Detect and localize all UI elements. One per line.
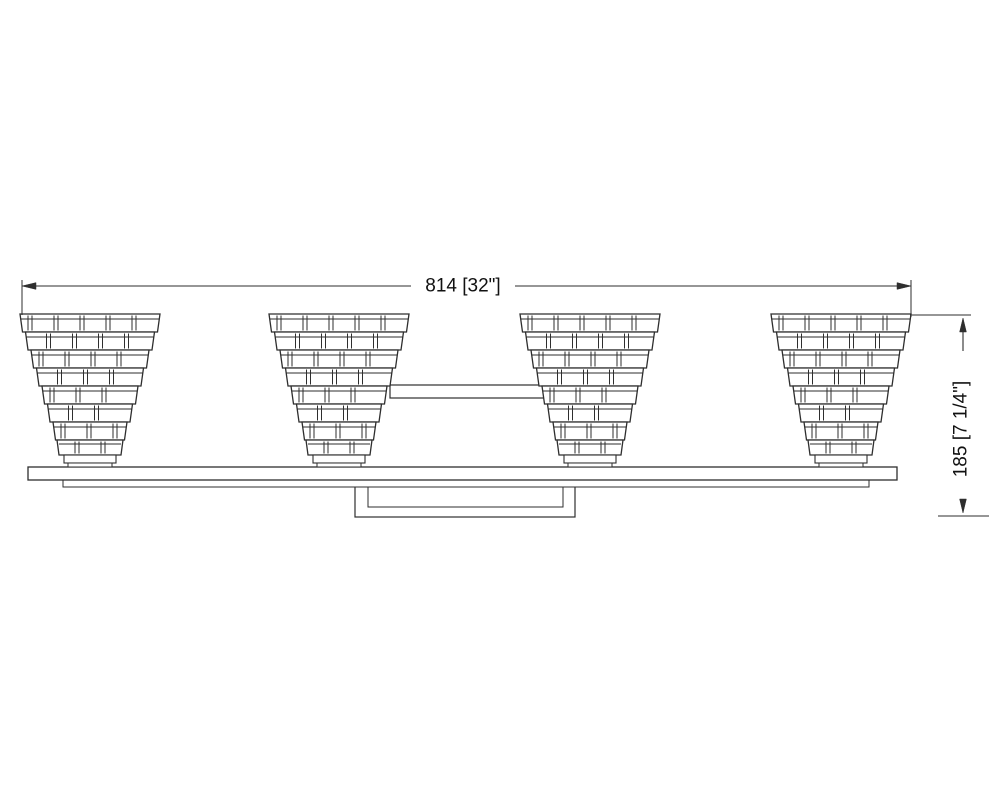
drawing-canvas: 814 [32"] 185 [7 1/4"] [0, 0, 1000, 800]
crossbar-arm [390, 385, 545, 398]
fixture-line-drawing [0, 0, 1000, 800]
mounting-bar [28, 467, 897, 487]
mounting-backplate [355, 486, 575, 517]
height-dimension-label: 185 [7 1/4"] [952, 376, 971, 483]
shade-4 [771, 314, 911, 467]
shade-2 [269, 314, 409, 467]
height-dimension [910, 315, 989, 516]
width-dimension-label: 814 [32"] [420, 277, 505, 296]
shade-1 [20, 314, 160, 467]
